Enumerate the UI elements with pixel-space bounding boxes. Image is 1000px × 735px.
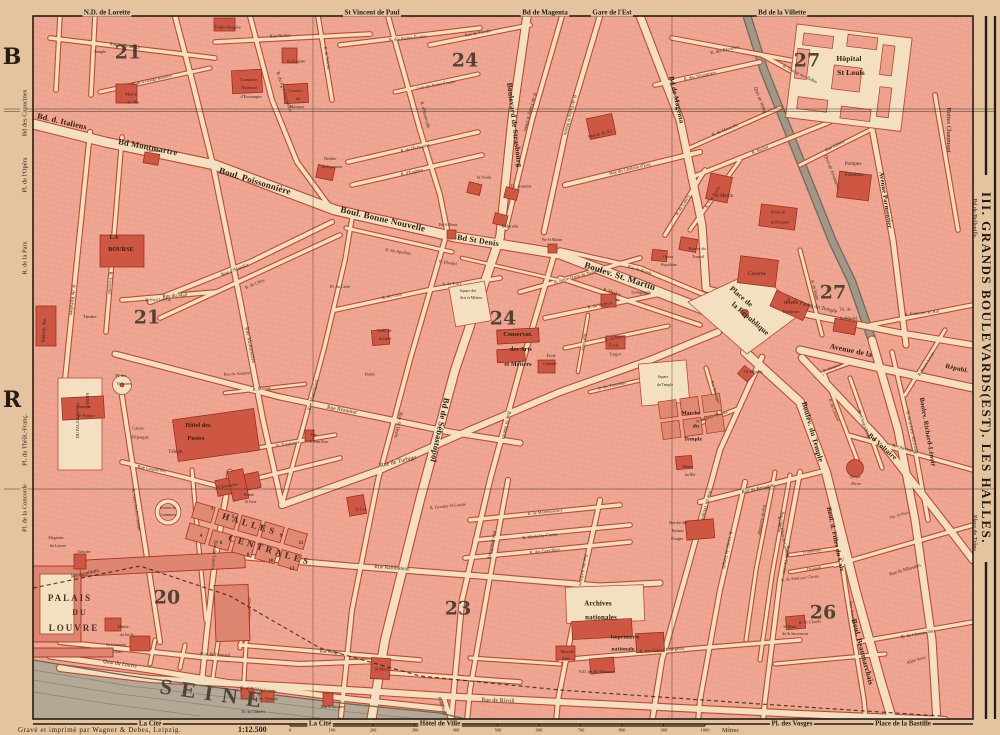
st-eugene [282, 48, 297, 63]
mairie-1er [105, 618, 121, 631]
comptoir-escompte [231, 69, 262, 94]
caserne [737, 256, 778, 287]
st-leu [347, 495, 367, 517]
st-germain-auxerrois [130, 636, 150, 651]
cirque-d-hiver [847, 460, 864, 477]
conservatoire-arts-metiers [497, 328, 540, 344]
porte-st-denis [447, 230, 456, 239]
conservatoire-musique [284, 83, 309, 103]
la-bourse [100, 235, 144, 267]
mairie-3e [676, 455, 693, 469]
opera-populaire [652, 249, 668, 261]
theatre-varietes [143, 152, 160, 165]
scale-unit-label: Mètres [722, 728, 739, 734]
folies-bergere [214, 18, 235, 31]
nd-blancs-manteaux [589, 657, 614, 674]
victoires-monument [120, 383, 124, 387]
square-arts-et-metiers [449, 281, 491, 327]
ecole-turgot [606, 336, 625, 349]
bourse-de-commerce [155, 499, 181, 525]
imprimerie-nationale [636, 632, 665, 652]
pompes-funebres [837, 171, 872, 201]
hopital-st-louis [786, 24, 913, 131]
synagogue [601, 294, 616, 307]
bibliotheque-nationale [36, 306, 56, 346]
porte-st-martin [548, 244, 557, 253]
archives-courtyard [565, 585, 644, 624]
scale-ratio: 1:12.500 [238, 725, 267, 734]
hotel-de-la-douane [759, 204, 797, 230]
oratoire [74, 554, 86, 569]
imprint-credit: Gravé et imprimé par Wagner & Debes, Lei… [18, 726, 181, 734]
theatre-victoria [261, 691, 274, 702]
map-canvas [0, 0, 1000, 735]
map-side-title: III. GRANDS BOULEVARDS(EST). LES HALLES. [978, 192, 994, 544]
archives-nationales [572, 618, 633, 639]
mairie-9e [116, 84, 137, 103]
ecole-centrale [538, 360, 555, 373]
theatre-gaite [371, 329, 389, 345]
mont-de-piete [556, 646, 575, 660]
marche-enfants-rouges [685, 519, 715, 540]
map-page: N.D. de LoretteSt Vincent de PaulBd de M… [0, 0, 1000, 735]
banque-de-france [61, 396, 104, 420]
jardin-palais-royal [58, 378, 102, 470]
republique-monument [742, 310, 749, 317]
bourse-du-travail [679, 237, 698, 253]
st-merri [370, 658, 390, 680]
theatre-chatelet [241, 688, 254, 699]
tour-st-jacques [323, 693, 333, 706]
st-denis-sacrement [786, 615, 806, 630]
